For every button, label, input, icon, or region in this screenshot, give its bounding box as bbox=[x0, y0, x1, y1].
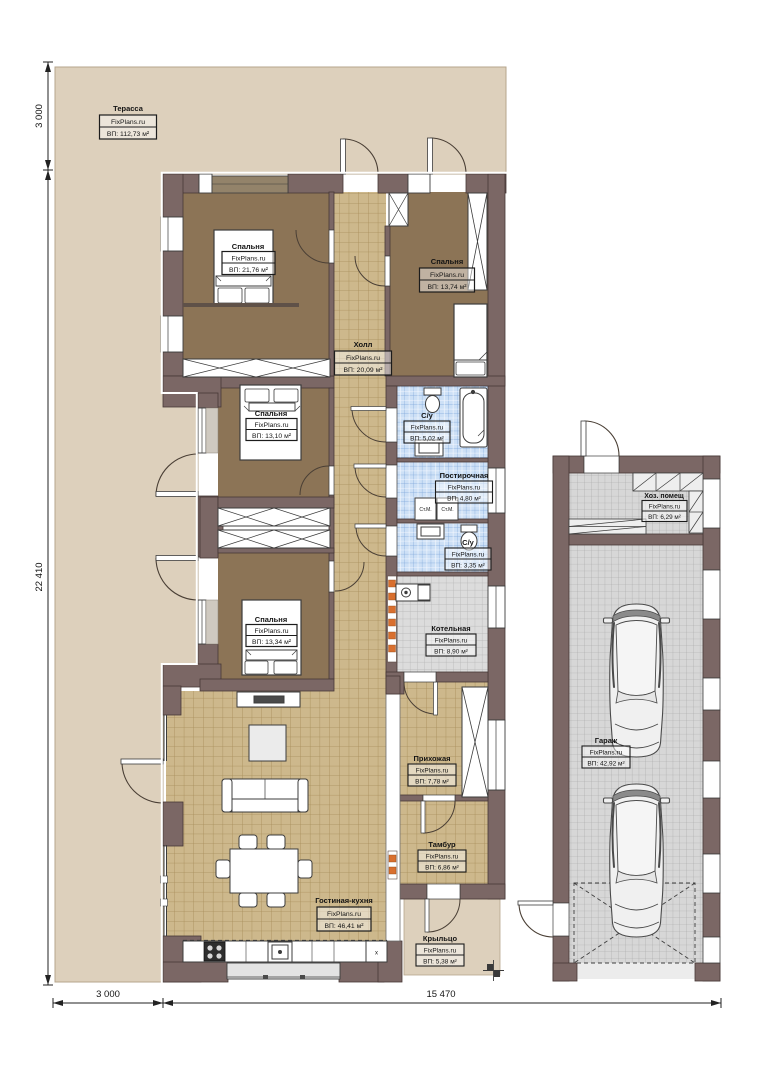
svg-text:ВП: 13,10 м²: ВП: 13,10 м² bbox=[252, 433, 292, 440]
svg-text:ВП: 3,35 м²: ВП: 3,35 м² bbox=[451, 563, 486, 570]
svg-text:С/у: С/у bbox=[462, 538, 475, 547]
svg-text:ВП: 112,73 м²: ВП: 112,73 м² bbox=[107, 131, 150, 138]
svg-text:ВП: 21,76 м²: ВП: 21,76 м² bbox=[229, 267, 269, 274]
svg-text:Спальня: Спальня bbox=[431, 257, 463, 266]
svg-text:Спальня: Спальня bbox=[255, 409, 287, 418]
svg-text:FixPlans.ru: FixPlans.ru bbox=[448, 485, 481, 492]
svg-text:15 470: 15 470 bbox=[426, 989, 455, 1000]
svg-text:Ст.М.: Ст.М. bbox=[441, 507, 453, 513]
svg-text:ВП: 7,78 м²: ВП: 7,78 м² bbox=[415, 779, 450, 786]
svg-text:FixPlans.ru: FixPlans.ru bbox=[416, 768, 449, 775]
svg-text:FixPlans.ru: FixPlans.ru bbox=[590, 750, 623, 757]
svg-text:Постирочная: Постирочная bbox=[440, 471, 489, 480]
svg-text:ВП: 13,34 м²: ВП: 13,34 м² bbox=[252, 639, 292, 646]
svg-text:FixPlans.ru: FixPlans.ru bbox=[424, 948, 457, 955]
svg-text:ВП: 20,09 м²: ВП: 20,09 м² bbox=[343, 367, 383, 374]
svg-text:FixPlans.ru: FixPlans.ru bbox=[232, 256, 266, 263]
svg-text:Крыльцо: Крыльцо bbox=[423, 934, 458, 943]
svg-text:Спальня: Спальня bbox=[255, 615, 287, 624]
svg-text:Спальня: Спальня bbox=[232, 242, 264, 251]
svg-text:22 410: 22 410 bbox=[34, 562, 45, 591]
svg-text:ВП: 4,80 м²: ВП: 4,80 м² bbox=[447, 496, 482, 503]
svg-text:Тамбур: Тамбур bbox=[428, 840, 456, 849]
svg-text:FixPlans.ru: FixPlans.ru bbox=[255, 422, 289, 429]
svg-text:FixPlans.ru: FixPlans.ru bbox=[430, 272, 464, 279]
svg-text:FixPlans.ru: FixPlans.ru bbox=[111, 119, 145, 126]
svg-text:FixPlans.ru: FixPlans.ru bbox=[649, 504, 681, 511]
svg-text:Котельная: Котельная bbox=[431, 624, 470, 633]
svg-text:ВП: 6,29 м²: ВП: 6,29 м² bbox=[648, 514, 681, 521]
svg-text:FixPlans.ru: FixPlans.ru bbox=[255, 628, 289, 635]
svg-text:ВП: 13,74 м²: ВП: 13,74 м² bbox=[427, 284, 467, 291]
svg-text:FixPlans.ru: FixPlans.ru bbox=[346, 355, 380, 362]
svg-text:Гараж: Гараж bbox=[595, 736, 618, 745]
svg-text:ВП: 6,86 м²: ВП: 6,86 м² bbox=[425, 865, 460, 872]
svg-text:ВП: 8,90 м²: ВП: 8,90 м² bbox=[434, 649, 469, 656]
svg-text:3 000: 3 000 bbox=[34, 104, 45, 128]
svg-text:Терасса: Терасса bbox=[113, 104, 144, 113]
svg-text:FixPlans.ru: FixPlans.ru bbox=[411, 425, 444, 432]
svg-text:FixPlans.ru: FixPlans.ru bbox=[426, 854, 459, 861]
svg-text:ВП: 46,41 м²: ВП: 46,41 м² bbox=[324, 923, 364, 930]
svg-text:Холл: Холл bbox=[354, 340, 373, 349]
svg-text:ВП: 5,38 м²: ВП: 5,38 м² bbox=[423, 959, 458, 966]
svg-text:Гостиная-кухня: Гостиная-кухня bbox=[315, 896, 372, 905]
svg-text:Хоз. помещ: Хоз. помещ bbox=[644, 493, 684, 500]
svg-text:3 000: 3 000 bbox=[96, 989, 120, 1000]
svg-text:С/у: С/у bbox=[421, 411, 434, 420]
svg-text:FixPlans.ru: FixPlans.ru bbox=[327, 911, 361, 918]
svg-text:ВП: 5,02 м²: ВП: 5,02 м² bbox=[410, 436, 445, 443]
svg-text:Прихожая: Прихожая bbox=[413, 754, 450, 763]
svg-text:Ст.М.: Ст.М. bbox=[419, 507, 431, 513]
svg-text:x: x bbox=[375, 951, 378, 957]
svg-text:FixPlans.ru: FixPlans.ru bbox=[435, 638, 468, 645]
svg-text:ВП: 42,92 м²: ВП: 42,92 м² bbox=[587, 761, 625, 768]
svg-text:FixPlans.ru: FixPlans.ru bbox=[452, 552, 485, 559]
